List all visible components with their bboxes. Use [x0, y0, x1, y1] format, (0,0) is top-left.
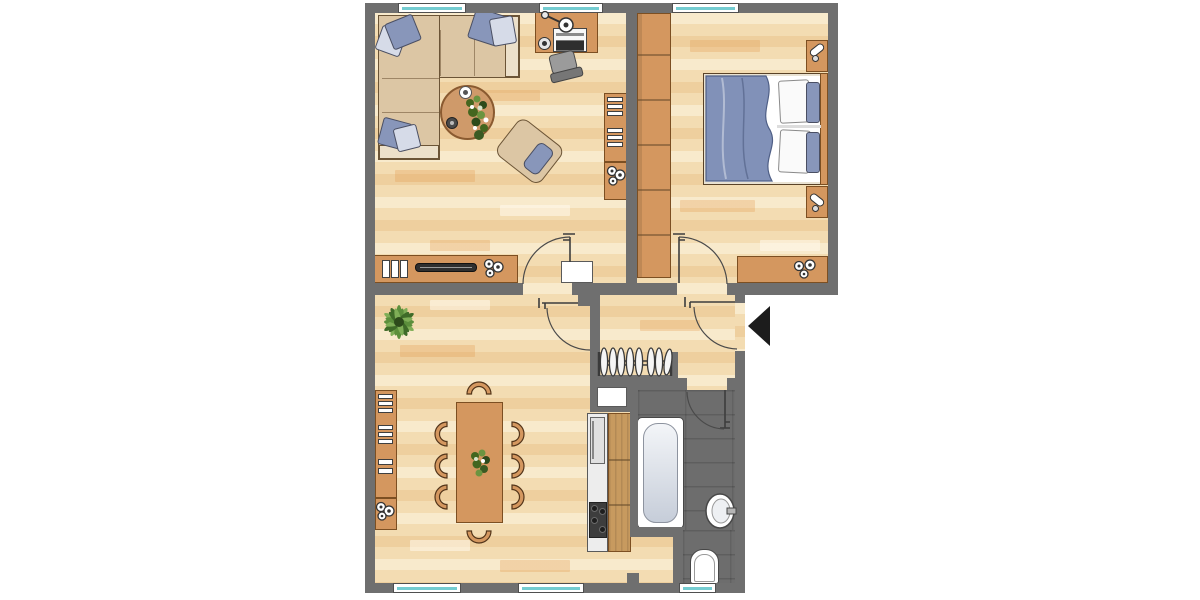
- washbasin: [706, 494, 736, 528]
- table-bouquet: [466, 96, 489, 141]
- coat-rack: [599, 348, 673, 376]
- bed-blanket: [706, 76, 773, 181]
- bathroom-door: [687, 390, 730, 429]
- floor-plan: [0, 0, 1200, 600]
- floor-plant: [383, 305, 416, 339]
- entrance-door: [685, 297, 737, 349]
- deco-circles: [377, 167, 816, 521]
- dining-centerpiece: [471, 450, 490, 477]
- entrance-arrow: [748, 306, 770, 346]
- overlay: [0, 0, 1200, 600]
- living-room-door: [523, 234, 575, 284]
- desk-lamp: [542, 12, 574, 33]
- dining-room-door: [539, 298, 590, 350]
- bedroom-door: [673, 234, 727, 284]
